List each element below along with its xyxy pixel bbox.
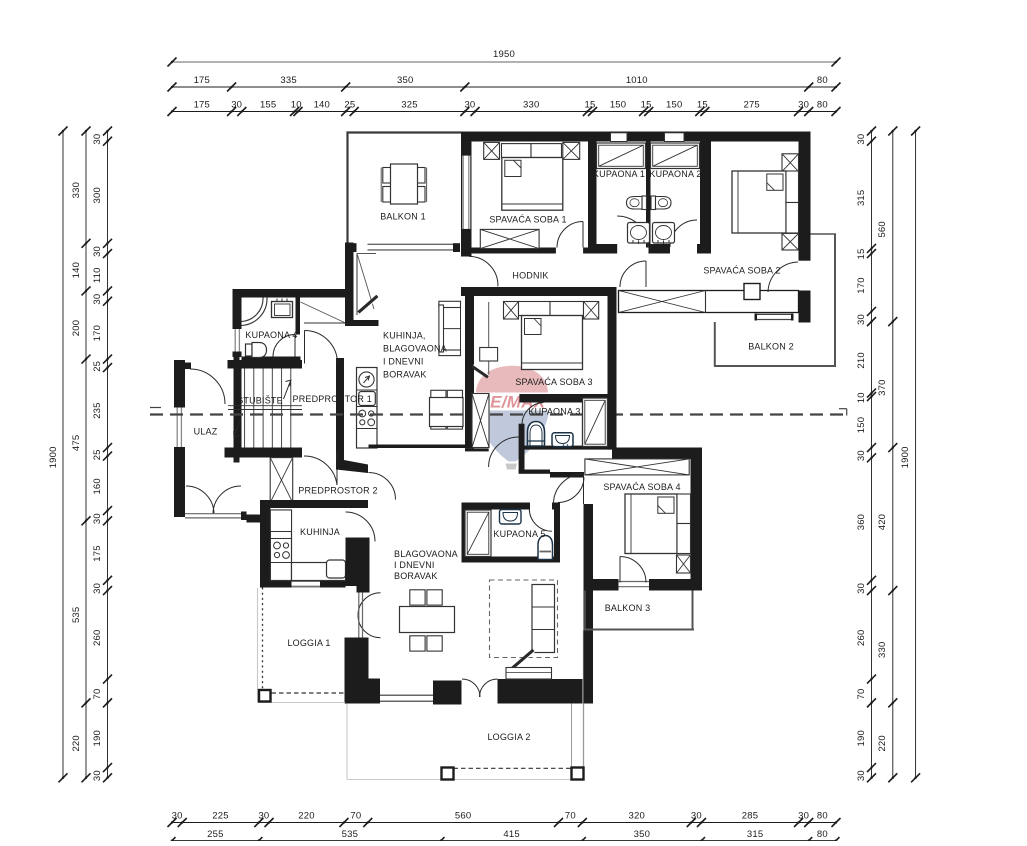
svg-text:BORAVAK: BORAVAK [383, 370, 427, 380]
svg-text:STUBIŠTE: STUBIŠTE [237, 396, 283, 406]
svg-text:30: 30 [798, 811, 809, 822]
svg-text:25: 25 [344, 100, 355, 111]
svg-text:KUHINJA: KUHINJA [300, 527, 340, 537]
svg-text:475: 475 [71, 435, 82, 451]
svg-text:80: 80 [817, 829, 828, 840]
svg-text:360: 360 [856, 514, 867, 530]
svg-text:255: 255 [207, 829, 223, 840]
svg-text:BALKON 2: BALKON 2 [748, 342, 794, 352]
svg-text:140: 140 [71, 262, 82, 278]
svg-text:200: 200 [71, 320, 82, 336]
svg-text:170: 170 [92, 325, 103, 341]
svg-text:190: 190 [92, 730, 103, 746]
svg-text:220: 220 [71, 735, 82, 751]
svg-text:BALKON 3: BALKON 3 [605, 603, 651, 613]
svg-text:KUHINJA,: KUHINJA, [383, 331, 426, 341]
svg-text:300: 300 [92, 187, 103, 203]
svg-text:175: 175 [194, 100, 210, 111]
svg-text:210: 210 [856, 352, 867, 368]
svg-text:70: 70 [350, 811, 361, 822]
svg-text:SPAVAĆA SOBA 4: SPAVAĆA SOBA 4 [603, 482, 680, 492]
svg-text:1950: 1950 [493, 49, 515, 60]
svg-text:1900: 1900 [900, 446, 911, 468]
svg-text:30: 30 [231, 100, 242, 111]
svg-text:PREDPROSTOR 2: PREDPROSTOR 2 [298, 486, 377, 496]
svg-text:320: 320 [629, 811, 645, 822]
svg-text:15: 15 [641, 100, 652, 111]
svg-text:315: 315 [856, 190, 867, 206]
svg-text:30: 30 [856, 770, 867, 781]
svg-text:30: 30 [92, 294, 103, 305]
svg-text:30: 30 [172, 811, 183, 822]
svg-text:560: 560 [877, 221, 888, 237]
svg-text:370: 370 [877, 379, 888, 395]
svg-text:415: 415 [503, 829, 519, 840]
svg-text:30: 30 [92, 134, 103, 145]
svg-text:LOGGIA 1: LOGGIA 1 [287, 638, 330, 648]
svg-text:220: 220 [298, 811, 314, 822]
svg-text:KUPAONA 1: KUPAONA 1 [593, 169, 645, 179]
svg-text:170: 170 [856, 277, 867, 293]
svg-text:140: 140 [314, 100, 330, 111]
svg-text:SPAVAĆA SOBA 2: SPAVAĆA SOBA 2 [703, 266, 780, 276]
svg-text:ULAZ: ULAZ [194, 427, 218, 437]
svg-text:350: 350 [634, 829, 650, 840]
svg-text:70: 70 [92, 688, 103, 699]
svg-text:330: 330 [71, 182, 82, 198]
svg-text:30: 30 [464, 100, 475, 111]
svg-text:SPAVAĆA SOBA 3: SPAVAĆA SOBA 3 [515, 377, 592, 387]
svg-text:KUPAONA 4: KUPAONA 4 [245, 330, 297, 340]
svg-text:220: 220 [877, 735, 888, 751]
svg-text:PREDPROSTOR 1: PREDPROSTOR 1 [293, 394, 372, 404]
svg-text:325: 325 [401, 100, 417, 111]
svg-text:535: 535 [342, 829, 358, 840]
svg-text:190: 190 [856, 730, 867, 746]
svg-text:350: 350 [397, 75, 413, 86]
svg-text:175: 175 [194, 75, 210, 86]
svg-text:420: 420 [877, 514, 888, 530]
svg-text:110: 110 [92, 267, 103, 283]
svg-text:80: 80 [817, 100, 828, 111]
svg-text:175: 175 [92, 545, 103, 561]
svg-text:LOGGIA 2: LOGGIA 2 [487, 732, 530, 742]
svg-text:30: 30 [691, 811, 702, 822]
svg-text:BLAGOVAONA: BLAGOVAONA [394, 549, 458, 559]
svg-text:225: 225 [212, 811, 228, 822]
svg-text:I DNEVNI: I DNEVNI [383, 357, 424, 367]
svg-text:30: 30 [92, 770, 103, 781]
svg-text:HODNIK: HODNIK [512, 271, 548, 281]
svg-text:25: 25 [92, 361, 103, 372]
svg-text:30: 30 [856, 314, 867, 325]
svg-text:275: 275 [743, 100, 759, 111]
svg-text:30: 30 [92, 583, 103, 594]
svg-text:70: 70 [856, 688, 867, 699]
svg-text:1900: 1900 [48, 446, 59, 468]
svg-text:235: 235 [92, 402, 103, 418]
svg-text:10: 10 [291, 100, 302, 111]
svg-text:330: 330 [877, 641, 888, 657]
svg-text:150: 150 [666, 100, 682, 111]
svg-text:30: 30 [856, 583, 867, 594]
svg-text:535: 535 [71, 607, 82, 623]
svg-text:30: 30 [856, 134, 867, 145]
svg-text:260: 260 [856, 630, 867, 646]
svg-text:I DNEVNI: I DNEVNI [394, 560, 435, 570]
svg-text:30: 30 [856, 450, 867, 461]
svg-text:25: 25 [92, 449, 103, 460]
svg-text:KUPAONA 3: KUPAONA 3 [528, 407, 580, 417]
svg-text:30: 30 [92, 513, 103, 524]
svg-text:15: 15 [697, 100, 708, 111]
svg-text:560: 560 [455, 811, 471, 822]
svg-text:15: 15 [856, 249, 867, 260]
svg-text:BLAGOVAONA: BLAGOVAONA [383, 344, 447, 354]
svg-text:260: 260 [92, 630, 103, 646]
svg-text:330: 330 [523, 100, 539, 111]
svg-text:80: 80 [817, 811, 828, 822]
svg-text:150: 150 [856, 417, 867, 433]
svg-text:SPAVAĆA SOBA 1: SPAVAĆA SOBA 1 [489, 215, 566, 225]
svg-text:30: 30 [798, 100, 809, 111]
svg-text:70: 70 [565, 811, 576, 822]
svg-text:1010: 1010 [626, 75, 648, 86]
svg-text:30: 30 [258, 811, 269, 822]
svg-text:KUPAONA 5: KUPAONA 5 [493, 529, 545, 539]
svg-text:10: 10 [856, 392, 867, 403]
svg-text:285: 285 [742, 811, 758, 822]
svg-text:30: 30 [92, 246, 103, 257]
svg-text:BALKON 1: BALKON 1 [380, 212, 426, 222]
svg-text:150: 150 [610, 100, 626, 111]
svg-text:15: 15 [584, 100, 595, 111]
svg-text:155: 155 [260, 100, 276, 111]
svg-text:160: 160 [92, 478, 103, 494]
svg-text:80: 80 [817, 75, 828, 86]
svg-text:335: 335 [280, 75, 296, 86]
svg-text:315: 315 [747, 829, 763, 840]
svg-text:KUPAONA 2: KUPAONA 2 [649, 169, 701, 179]
svg-text:BORAVAK: BORAVAK [394, 571, 438, 581]
